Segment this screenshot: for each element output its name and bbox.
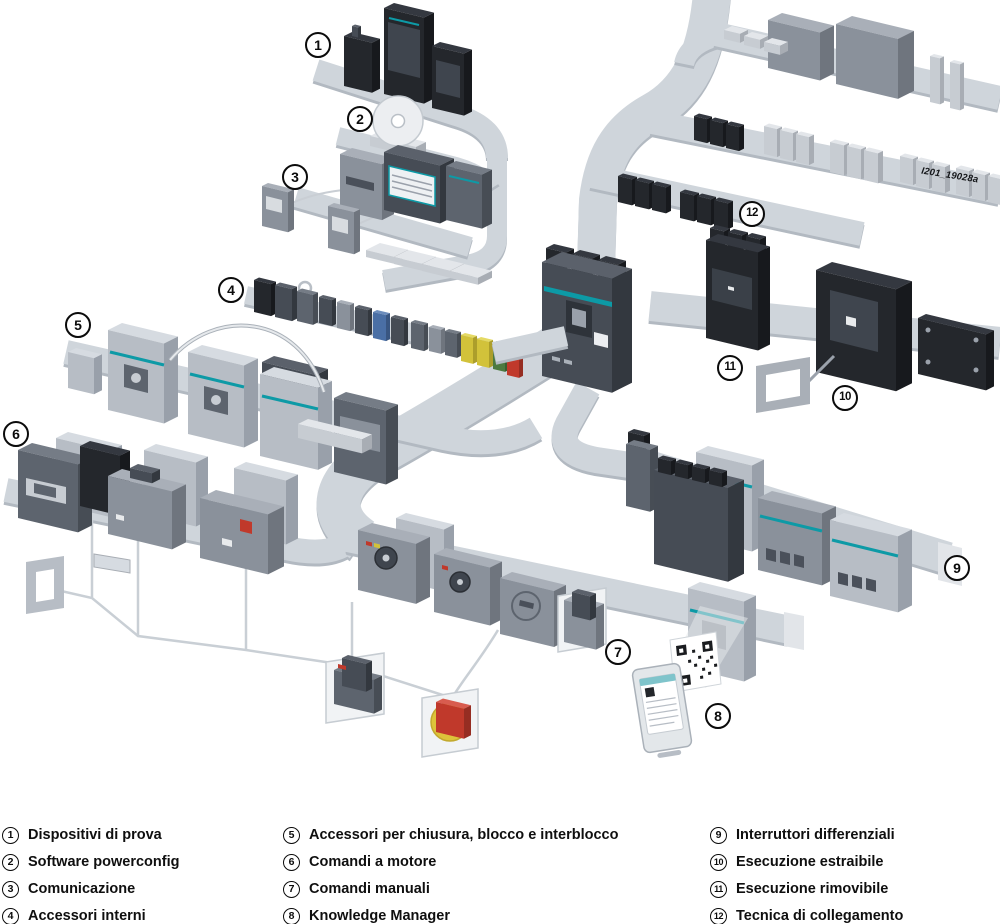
legend-column-2: 5 Accessori per chiusura, blocco e inter… — [283, 822, 618, 924]
legend-item-4: 4 Accessori interni — [2, 903, 179, 924]
motor-operators — [18, 432, 298, 574]
legend-item-1: 1 Dispositivi di prova — [2, 822, 179, 849]
plug-in-breaker — [706, 225, 770, 350]
legend-label: Interruttori differenziali — [736, 828, 895, 843]
callout-12: 12 — [739, 201, 765, 227]
legend-number-badge: 7 — [283, 881, 300, 898]
callout-11: 11 — [717, 355, 743, 381]
callout-4: 4 — [218, 277, 244, 303]
legend-label: Software powerconfig — [28, 855, 179, 870]
legend-column-3: 9 Interruttori differenziali 10 Esecuzio… — [710, 822, 903, 924]
legend-label: Knowledge Manager — [309, 909, 450, 924]
legend-item-11: 11 Esecuzione rimovibile — [710, 876, 903, 903]
door-frame — [756, 357, 810, 413]
legend-item-10: 10 Esecuzione estraibile — [710, 849, 903, 876]
legend-item-2: 2 Software powerconfig — [2, 849, 179, 876]
door-handles — [326, 653, 478, 757]
legend-item-7: 7 Comandi manuali — [283, 876, 618, 903]
legend-number-badge: 10 — [710, 854, 727, 871]
legend-label: Comandi a motore — [309, 855, 436, 870]
legend-label: Dispositivi di prova — [28, 828, 162, 843]
legend-label: Accessori per chiusura, blocco e interbl… — [309, 828, 618, 843]
legend-item-3: 3 Comunicazione — [2, 876, 179, 903]
legend-label: Comunicazione — [28, 882, 135, 897]
legend-number-badge: 9 — [710, 827, 727, 844]
legend-item-8: 8 Knowledge Manager — [283, 903, 618, 924]
draw-out-breaker — [800, 262, 912, 391]
legend-item-5: 5 Accessori per chiusura, blocco e inter… — [283, 822, 618, 849]
legend-number-badge: 8 — [283, 908, 300, 924]
callout-1: 1 — [305, 32, 331, 58]
callout-10: 10 — [832, 385, 858, 411]
legend-number-badge: 1 — [2, 827, 19, 844]
legend-label: Esecuzione rimovibile — [736, 882, 888, 897]
legend-item-9: 9 Interruttori differenziali — [710, 822, 903, 849]
legend-number-badge: 11 — [710, 881, 727, 898]
legend-item-6: 6 Comandi a motore — [283, 849, 618, 876]
callout-2: 2 — [347, 106, 373, 132]
legend-number-badge: 4 — [2, 908, 19, 924]
legend-label: Tecnica di collegamento — [736, 909, 903, 924]
legend-number-badge: 3 — [2, 881, 19, 898]
product-overview-figure: 1 2 3 4 5 6 7 8 9 10 11 12 I201_19028a 1… — [0, 0, 1000, 924]
legend-number-badge: 5 — [283, 827, 300, 844]
legend-label: Esecuzione estraibile — [736, 855, 883, 870]
legend-number-badge: 2 — [2, 854, 19, 871]
callout-8: 8 — [705, 703, 731, 729]
legend-label: Comandi manuali — [309, 882, 430, 897]
callout-3: 3 — [282, 164, 308, 190]
legend-column-1: 1 Dispositivi di prova 2 Software powerc… — [2, 822, 179, 924]
legend-item-12: 12 Tecnica di collegamento — [710, 903, 903, 924]
callout-7: 7 — [605, 639, 631, 665]
legend-number-badge: 6 — [283, 854, 300, 871]
callout-5: 5 — [65, 312, 91, 338]
legend-label: Accessori interni — [28, 909, 146, 924]
callout-9: 9 — [944, 555, 970, 581]
legend-number-badge: 12 — [710, 908, 727, 924]
callout-6: 6 — [3, 421, 29, 447]
